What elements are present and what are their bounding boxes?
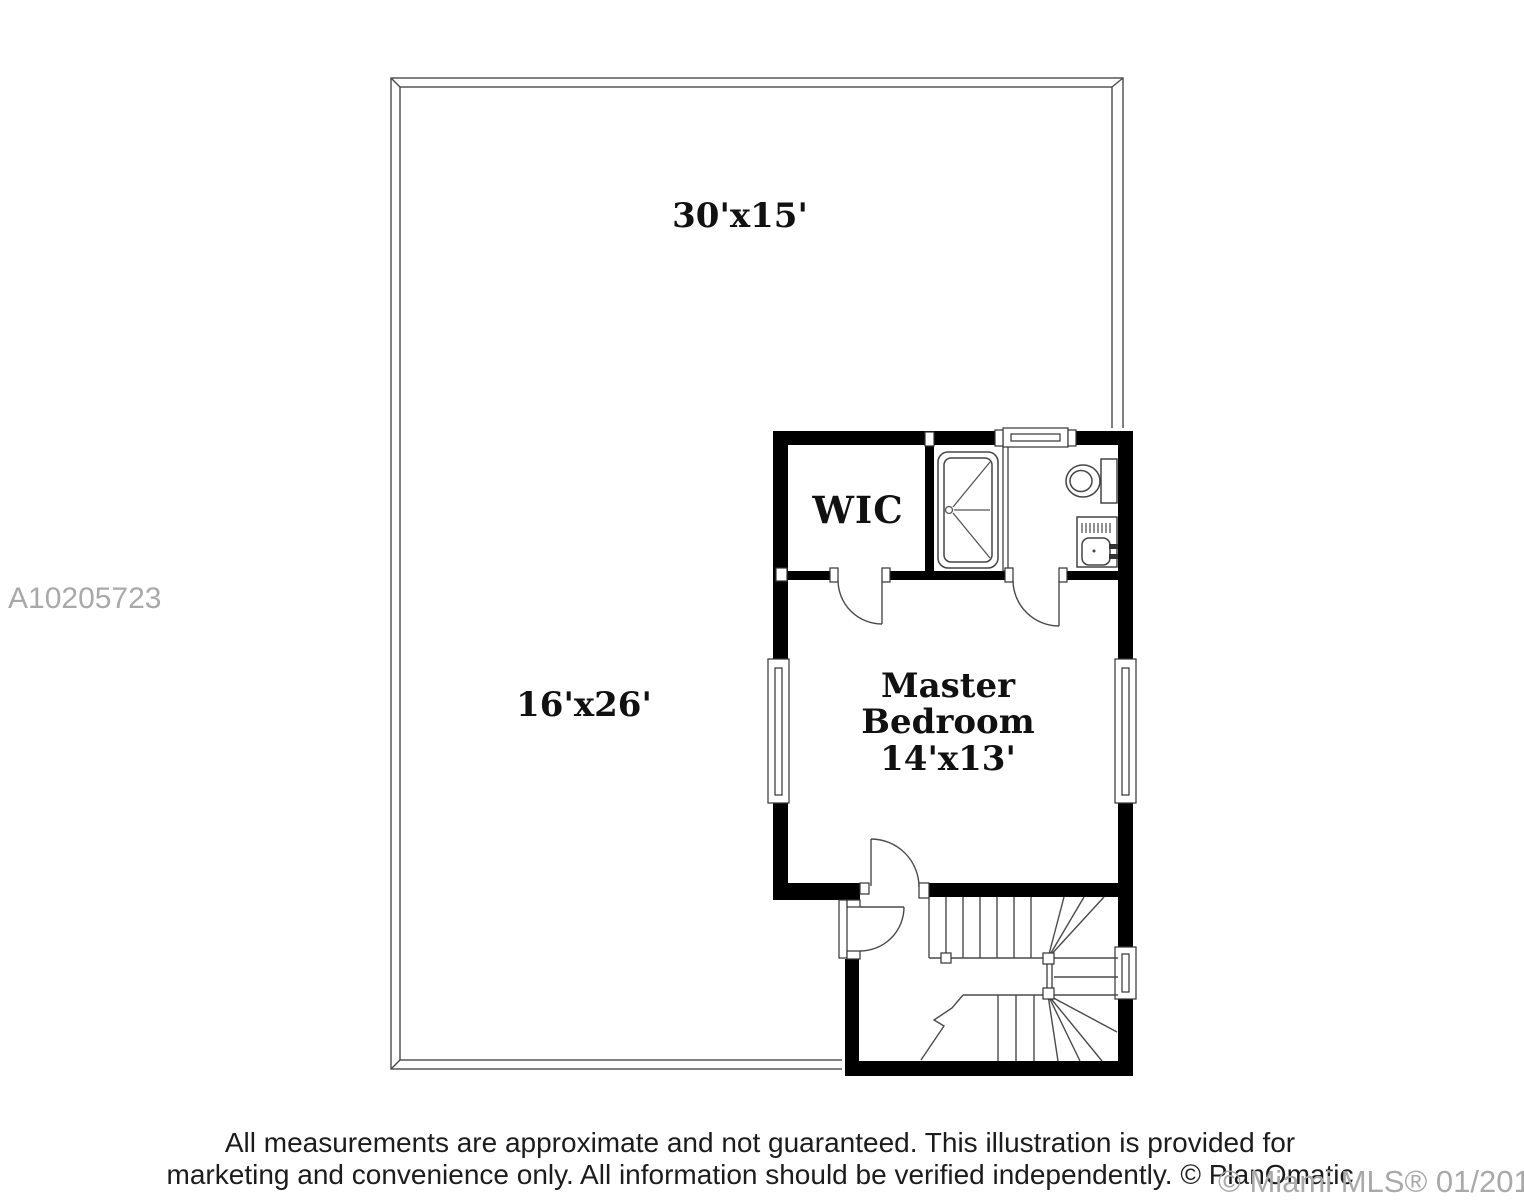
stair-window-icon [1115, 947, 1136, 999]
sink-icon [1077, 517, 1118, 567]
shower-icon [938, 452, 998, 568]
disclaimer-line2: marketing and convenience only. All info… [167, 1159, 1354, 1190]
master-bedroom-dimensions: 14'x13' [880, 739, 1016, 779]
mls-watermark: © Miami MLS® 01/2017 [1218, 1164, 1524, 1199]
bedroom-window-left-icon [768, 659, 789, 803]
terrace-upper-label: 30'x15' [672, 196, 808, 236]
disclaimer-line1: All measurements are approximate and not… [225, 1127, 1295, 1158]
floorplan-drawing: 30'x15' 16'x26' WIC Master Bedroom 14'x1… [0, 0, 1524, 1200]
bedroom-window-right-icon [1115, 659, 1136, 803]
floorplan-page: 30'x15' 16'x26' WIC Master Bedroom 14'x1… [0, 0, 1524, 1200]
terrace-lower-label: 16'x26' [516, 685, 652, 725]
wic-label: WIC [811, 488, 903, 532]
master-bedroom-label-line1: Master [881, 666, 1016, 706]
bath-window-icon [1003, 428, 1068, 447]
master-bedroom-label-line2: Bedroom [861, 702, 1034, 742]
listing-id-watermark: A10205723 [8, 582, 162, 615]
